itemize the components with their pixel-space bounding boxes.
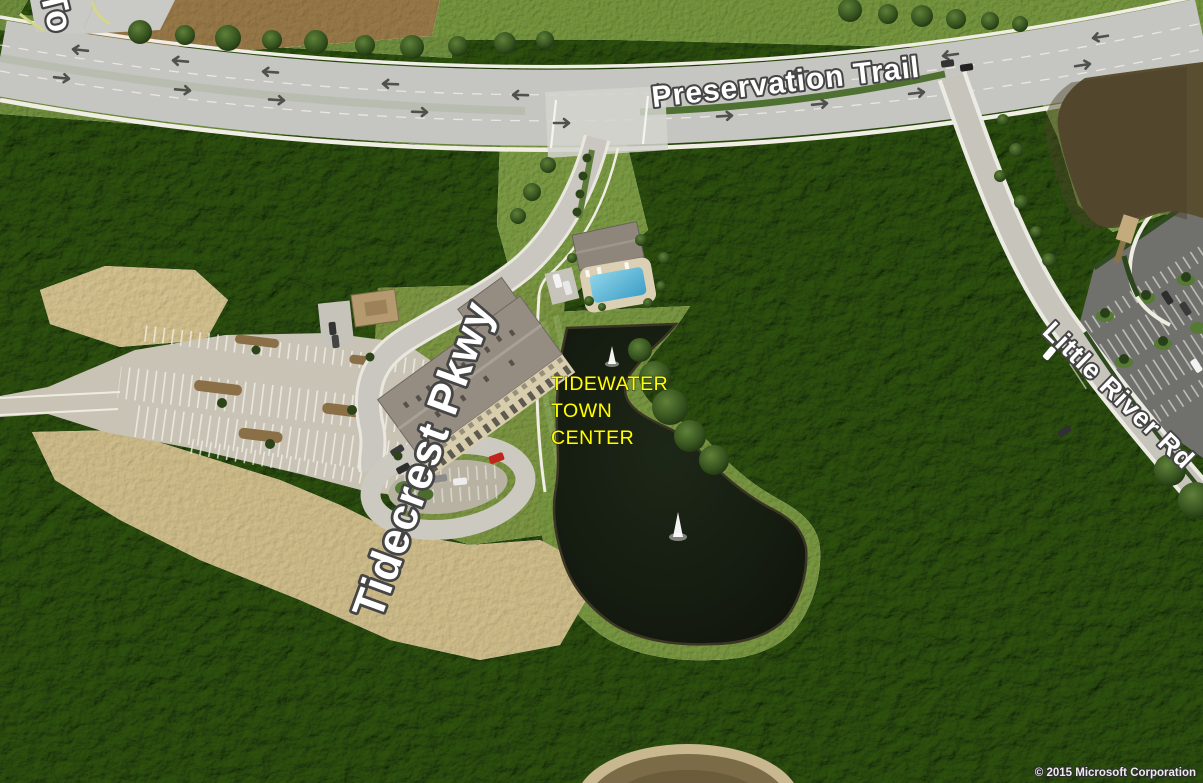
copyright-attribution: © 2015 Microsoft Corporation (1035, 767, 1196, 779)
aerial-map: Preservation Trail Tidecrest Pkwy Little… (0, 0, 1203, 783)
place-label-line1: TIDEWATER (551, 373, 668, 395)
leasing-office (351, 289, 399, 327)
place-label-line2: TOWN (551, 400, 612, 422)
place-label-line3: CENTER (551, 427, 634, 449)
map-canvas[interactable]: Preservation Trail Tidecrest Pkwy Little… (0, 0, 1203, 783)
